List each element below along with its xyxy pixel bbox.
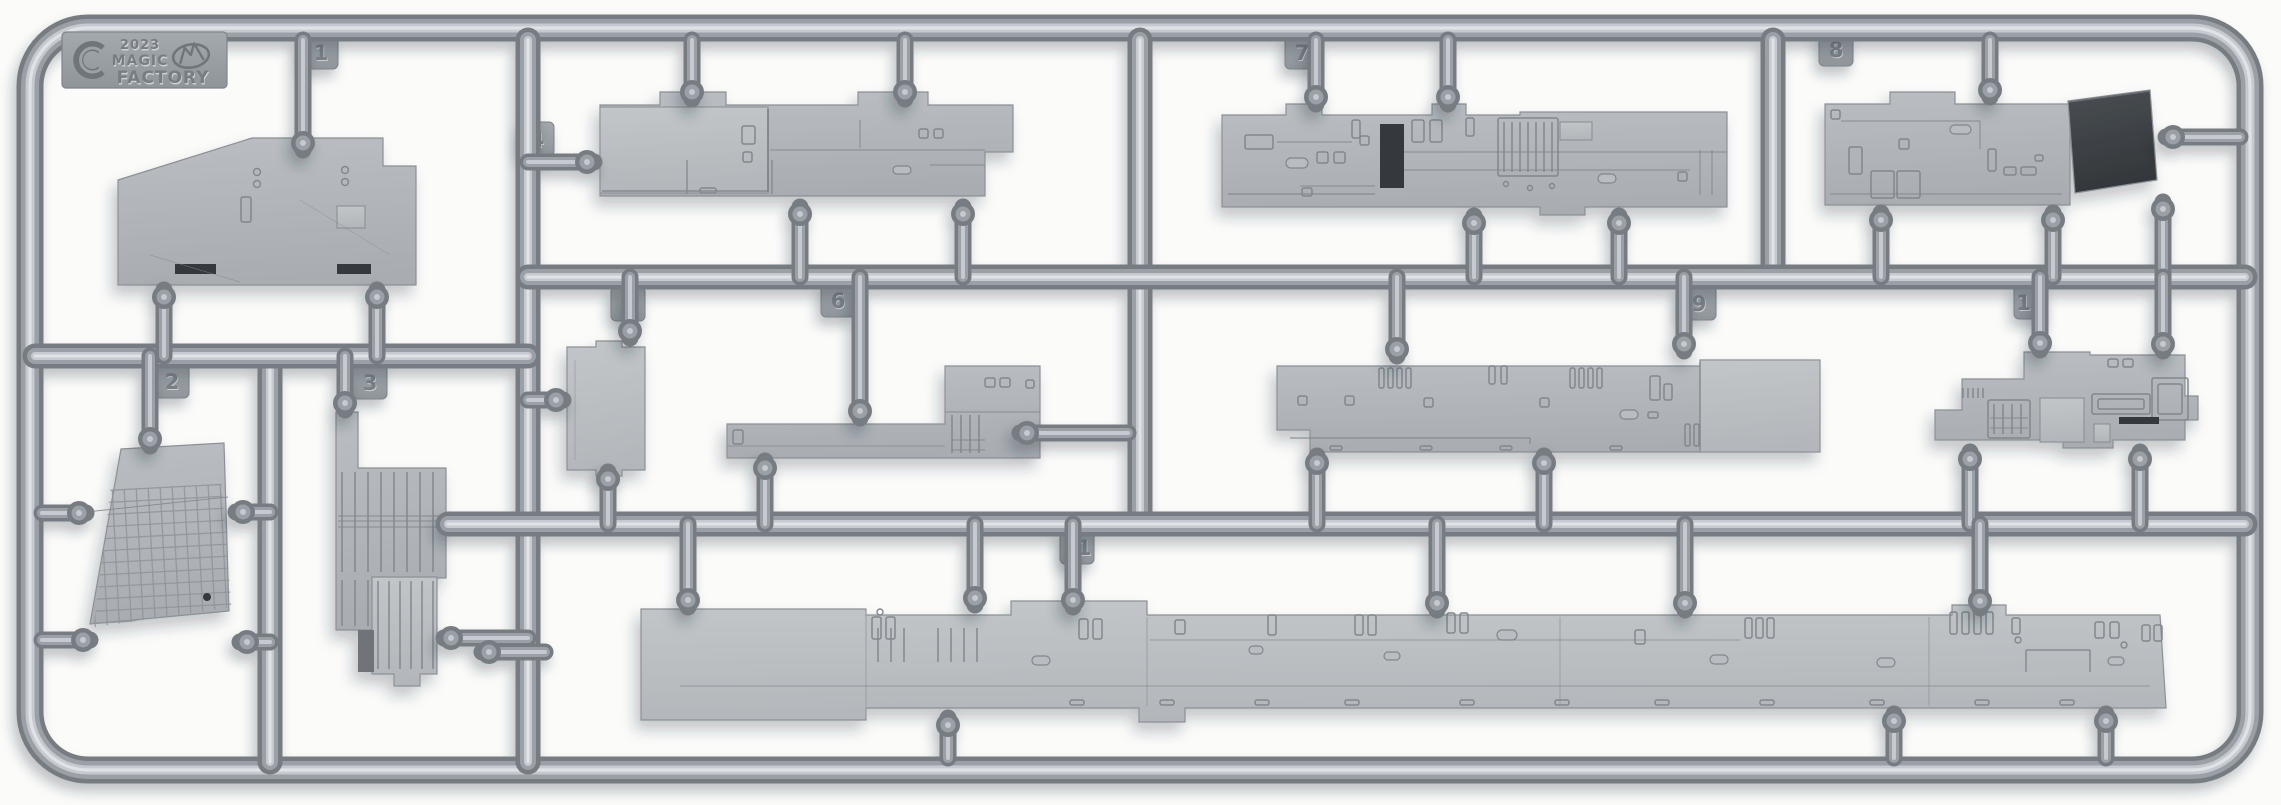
part-4-deck-section (600, 92, 1013, 196)
gate-bulb (1987, 87, 1993, 93)
gate-bulb (76, 510, 82, 516)
gate-bulb (1616, 220, 1622, 226)
gate-bulb (1891, 718, 1897, 724)
tag-number: 8 (1829, 38, 1844, 62)
gate-bulb (2170, 134, 2176, 140)
gate-bulb (147, 436, 153, 442)
gate-bulb (960, 211, 966, 217)
gate-bulb (448, 635, 454, 641)
gate-bulb (605, 476, 611, 482)
gate-bulb (161, 294, 167, 300)
gate-bulb (1434, 600, 1440, 606)
brand-name-line1: MAGIC (112, 53, 169, 69)
gate-bulb (80, 637, 86, 643)
gate-bulb (902, 89, 908, 95)
gate-bulb (1967, 456, 1973, 462)
gate-bulb (2160, 206, 2166, 212)
part-8-dark-flap (2068, 90, 2157, 193)
gate-bulb (553, 397, 559, 403)
part-number-tag-2: 22 (155, 364, 189, 398)
gate-bulb (1313, 94, 1319, 100)
gate-bulb (584, 159, 590, 165)
gate-bulb (2160, 341, 2166, 347)
gate-bulb (244, 639, 250, 645)
gate-bulb (1445, 94, 1451, 100)
sprue-c-frame-image: 11223344556677889910101111 2023 2023 MAG… (0, 0, 2281, 805)
part-8-deck-plate (1825, 92, 2070, 205)
part-11-hull-strip (641, 601, 2166, 722)
gate-bulb (2050, 217, 2056, 223)
gate-bulb (1977, 598, 1983, 604)
gate-bulb (2137, 456, 2143, 462)
gate-bulb (1878, 217, 1884, 223)
gate-bulb (1314, 460, 1320, 466)
gate-bulb (486, 649, 492, 655)
gate-bulb (300, 140, 306, 146)
brand-tag: 2023 2023 MAGIC MAGIC FACTORY FACTORY (62, 32, 227, 89)
part-7-superstructure-deck (1222, 104, 1727, 215)
gate-bulb (1471, 220, 1477, 226)
part-9-long-plate (1277, 360, 1820, 452)
sprue-photo: 11223344556677889910101111 2023 2023 MAG… (0, 0, 2281, 805)
gate-bulb (689, 89, 695, 95)
tag-number: 6 (831, 289, 846, 313)
gate-bulb (342, 400, 348, 406)
gate-bulb (972, 595, 978, 601)
gate-bulb (2037, 340, 2043, 346)
tag-number: 3 (363, 371, 378, 395)
tag-number: 9 (1692, 292, 1707, 316)
tag-number: 7 (1295, 41, 1310, 65)
brand-year: 2023 (120, 38, 160, 53)
gate-bulb (627, 328, 633, 334)
gate-bulb (240, 509, 246, 515)
brand-name-line2: FACTORY (117, 68, 210, 88)
part-number-tag-3: 33 (353, 365, 387, 399)
tag-number: 1 (314, 41, 329, 65)
gate-bulb (797, 211, 803, 217)
gate-bulb (1681, 341, 1687, 347)
gate-bulb (857, 408, 863, 414)
gate-bulb (1394, 346, 1400, 352)
gate-bulb (1682, 600, 1688, 606)
gate-bulb (1070, 597, 1076, 603)
gate-bulb (374, 294, 380, 300)
gate-bulb (685, 597, 691, 603)
gate-bulb (2103, 718, 2109, 724)
gate-bulb (945, 722, 951, 728)
tag-number: 2 (165, 370, 180, 394)
gate-bulb (1024, 430, 1030, 436)
part-5-plate (567, 341, 645, 476)
gate-bulb (1541, 460, 1547, 466)
gate-bulb (762, 465, 768, 471)
